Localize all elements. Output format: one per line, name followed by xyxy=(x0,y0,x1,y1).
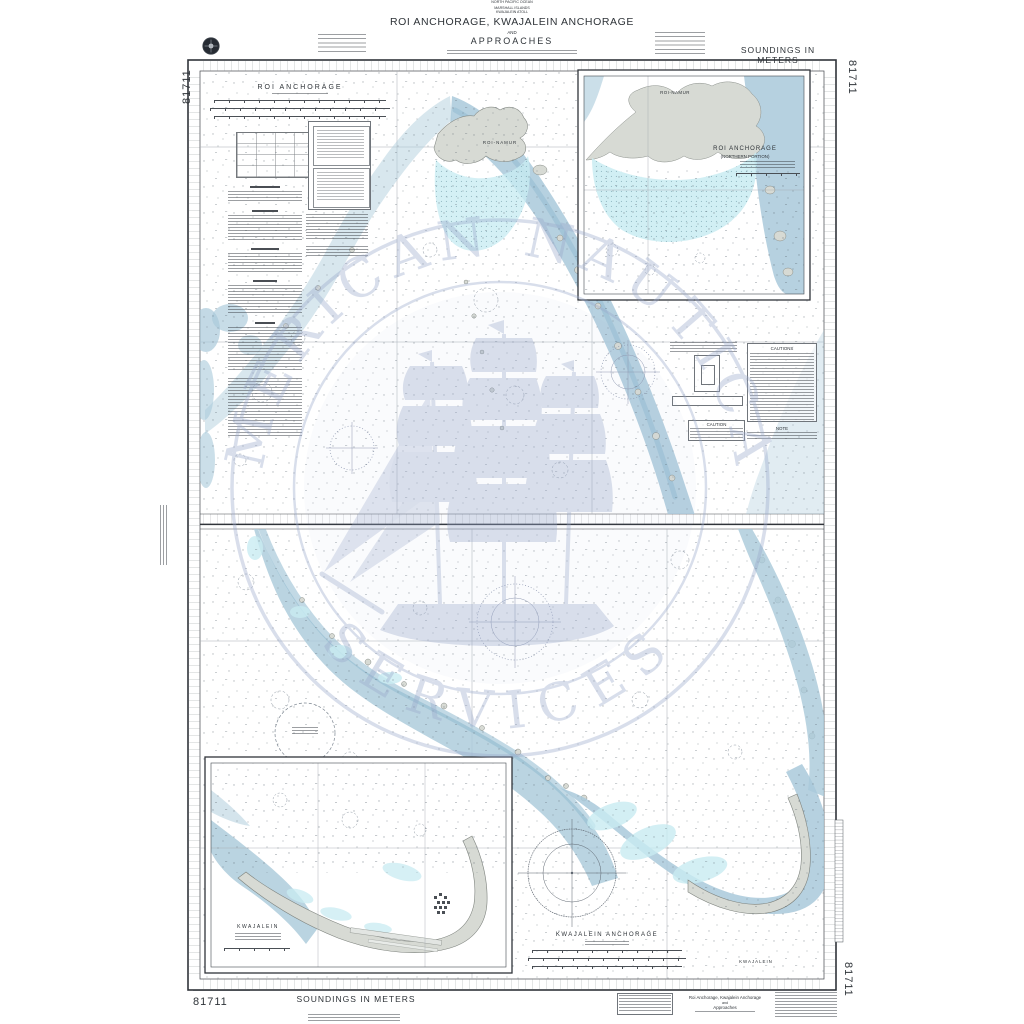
roi-namur-label-main: ROI-NAMUR xyxy=(468,140,532,145)
graphic-scale-bar xyxy=(528,958,686,961)
kwajalein-anchorage-scale-note xyxy=(585,941,629,945)
print-note-fineprint xyxy=(193,990,250,993)
berth-circle-label xyxy=(292,727,318,735)
caution-title: CAUTION xyxy=(690,422,743,427)
footer-title-line-3: Approaches xyxy=(683,1005,767,1010)
kwajalein-anchorage-title: KWAJALEIN ANCHORAGE xyxy=(532,932,682,938)
source-note-fineprint xyxy=(447,50,577,55)
graphic-scale-bar xyxy=(214,116,386,119)
chart-number-top-right: 81711 xyxy=(846,60,858,95)
plans-index-box xyxy=(308,121,371,210)
caution-box: CAUTION xyxy=(688,420,745,441)
inset-kwajalein-title: KWAJALEIN xyxy=(228,924,288,930)
chart-main-title: ROI ANCHORAGE, KWAJALEIN ANCHORAGE xyxy=(312,16,712,28)
diagram-box xyxy=(694,355,720,392)
footer-paragraph-center xyxy=(308,1014,400,1023)
right-margin-note xyxy=(670,342,737,352)
chart-subtitle: APPROACHES xyxy=(412,36,612,46)
product-image-page: { "chart_number": "81711", "header": { "… xyxy=(0,0,1024,1024)
roi-plan-scale-note xyxy=(272,93,328,96)
chart-notes-column xyxy=(228,186,302,438)
inset-roi-scale-bar xyxy=(736,173,800,176)
small-note-box xyxy=(672,396,743,406)
footer-paragraph-right xyxy=(775,992,837,1018)
projection-note-fineprint xyxy=(318,34,366,55)
note-text xyxy=(747,432,817,439)
soundings-note-top: SOUNDINGS IN METERS xyxy=(723,45,833,65)
graphic-scale-bar xyxy=(532,966,682,969)
chart-number-top-left: 81711 xyxy=(181,69,193,104)
soundings-note-bottom: SOUNDINGS IN METERS xyxy=(296,994,416,1004)
graphic-scale-bar xyxy=(214,100,386,103)
inset-roi-title: ROI ANCHORAGE xyxy=(690,146,800,152)
header-region-line-1: NORTH PACIFIC OCEAN xyxy=(392,0,632,4)
chart-number-bottom-left: 81711 xyxy=(193,996,228,1008)
plans-index-note xyxy=(306,246,368,258)
footer-note-box xyxy=(617,993,673,1015)
edition-note-vertical xyxy=(160,505,169,565)
cautions-title: CAUTIONS xyxy=(750,346,814,351)
inset-kwajalein-scale-bar xyxy=(224,948,290,951)
graphic-scale-bar xyxy=(210,108,390,111)
header-region-line-3: KWAJALEIN ATOLL xyxy=(392,10,632,14)
roi-namur-label-inset: ROI-NAMUR xyxy=(640,90,710,95)
cautions-box: CAUTIONS xyxy=(747,343,817,422)
roi-plan-title: ROI ANCHORAGE xyxy=(240,84,360,91)
caution-text xyxy=(690,428,743,440)
abbreviation-note-fineprint xyxy=(655,32,705,57)
graphic-scale-bar xyxy=(532,950,682,953)
footer-title-line-1: Roi Anchorage, Kwajalein Anchorage xyxy=(683,995,767,1000)
inset-roi-scale-note xyxy=(740,161,795,169)
inset-roi-subtitle: (NORTHERN PORTION) xyxy=(690,154,800,159)
plans-index-legend xyxy=(306,214,368,240)
inset-kwajalein-scale-note xyxy=(235,933,281,940)
chart-text-layer: NORTH PACIFIC OCEAN MARSHALL ISLANDS KWA… xyxy=(0,0,1024,1024)
chart-number-bottom-right: 81711 xyxy=(842,962,854,997)
kwajalein-island-label: KWAJALEIN xyxy=(726,959,786,964)
chart-title-conjunction: AND xyxy=(462,30,562,35)
footer-title-fineprint xyxy=(695,1011,755,1014)
header-region-line-2: MARSHALL ISLANDS xyxy=(392,6,632,10)
cautions-text xyxy=(750,353,814,421)
note-title: NOTE xyxy=(747,426,817,431)
